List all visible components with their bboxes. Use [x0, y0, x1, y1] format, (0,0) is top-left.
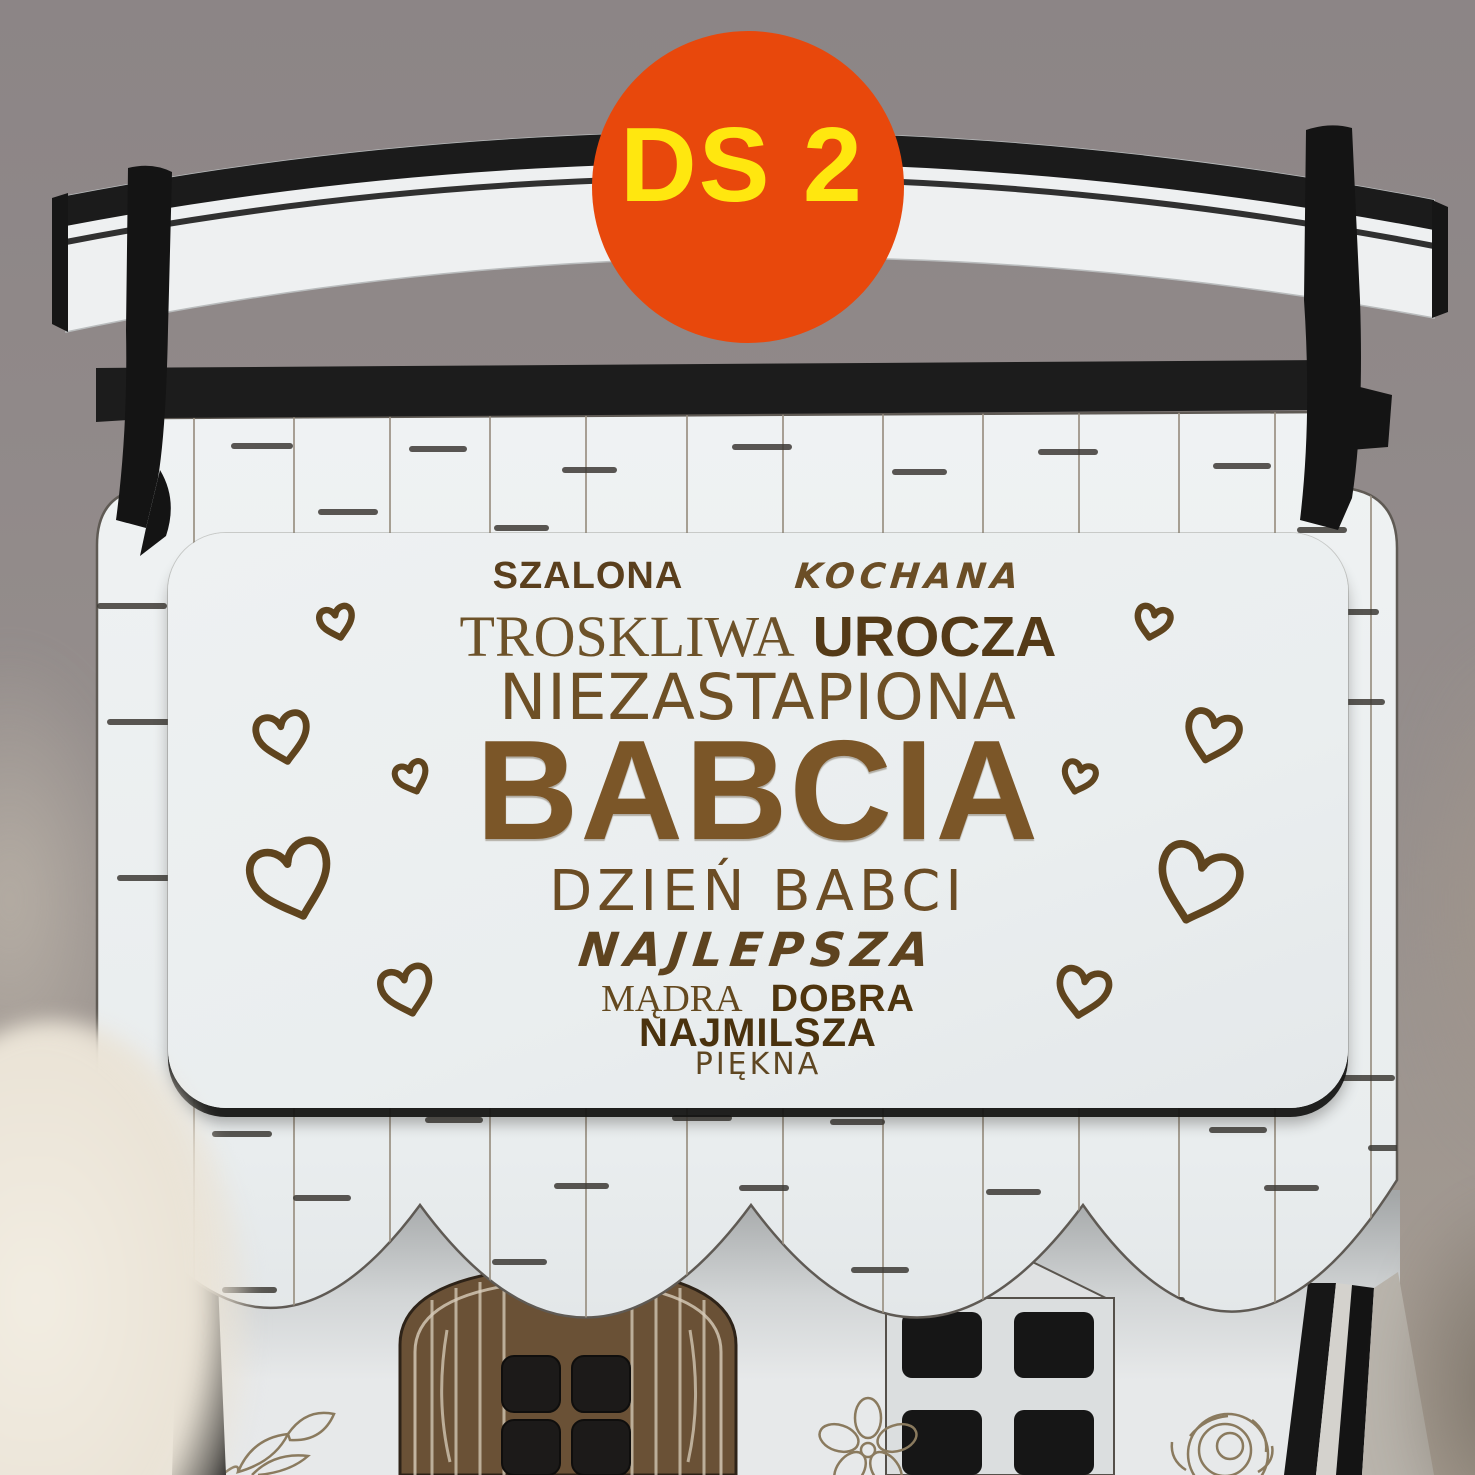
word-kochana: KOCHANA: [793, 557, 1025, 597]
engraved-plaque: SZALONA KOCHANA TROSKLIWA UROCZA NIEZAST…: [168, 533, 1348, 1108]
handle-right-cap: [1432, 200, 1448, 318]
plaque-row-5: DZIEŃ BABCI: [168, 859, 1348, 924]
right-hook-wedge: [1350, 385, 1392, 450]
word-szalona: SZALONA: [493, 555, 684, 598]
plaque-row-9: PIĘKNA: [168, 1047, 1348, 1082]
ds2-badge-label: DS 2: [620, 105, 864, 226]
handle-left-cap: [52, 193, 68, 332]
product-photo-scene: SZALONA KOCHANA TROSKLIWA UROCZA NIEZAST…: [0, 0, 1475, 1475]
right-hook: [1300, 125, 1361, 530]
word-dzien-babci: DZIEŃ BABCI: [549, 859, 967, 924]
word-troskliwa: TROSKLIWA: [460, 603, 795, 670]
ds2-badge: DS 2: [592, 31, 904, 343]
plaque-row-2: TROSKLIWA UROCZA: [168, 603, 1348, 670]
plaque-row-4: BABCIA: [168, 709, 1348, 873]
word-najlepsza: NAJLEPSZA: [576, 923, 940, 978]
left-corner-post: [172, 1275, 226, 1475]
plaque-row-6: NAJLEPSZA: [168, 923, 1348, 978]
word-babcia: BABCIA: [476, 709, 1040, 873]
plaque-row-1: SZALONA KOCHANA: [168, 555, 1348, 598]
word-piekna: PIĘKNA: [695, 1047, 822, 1082]
